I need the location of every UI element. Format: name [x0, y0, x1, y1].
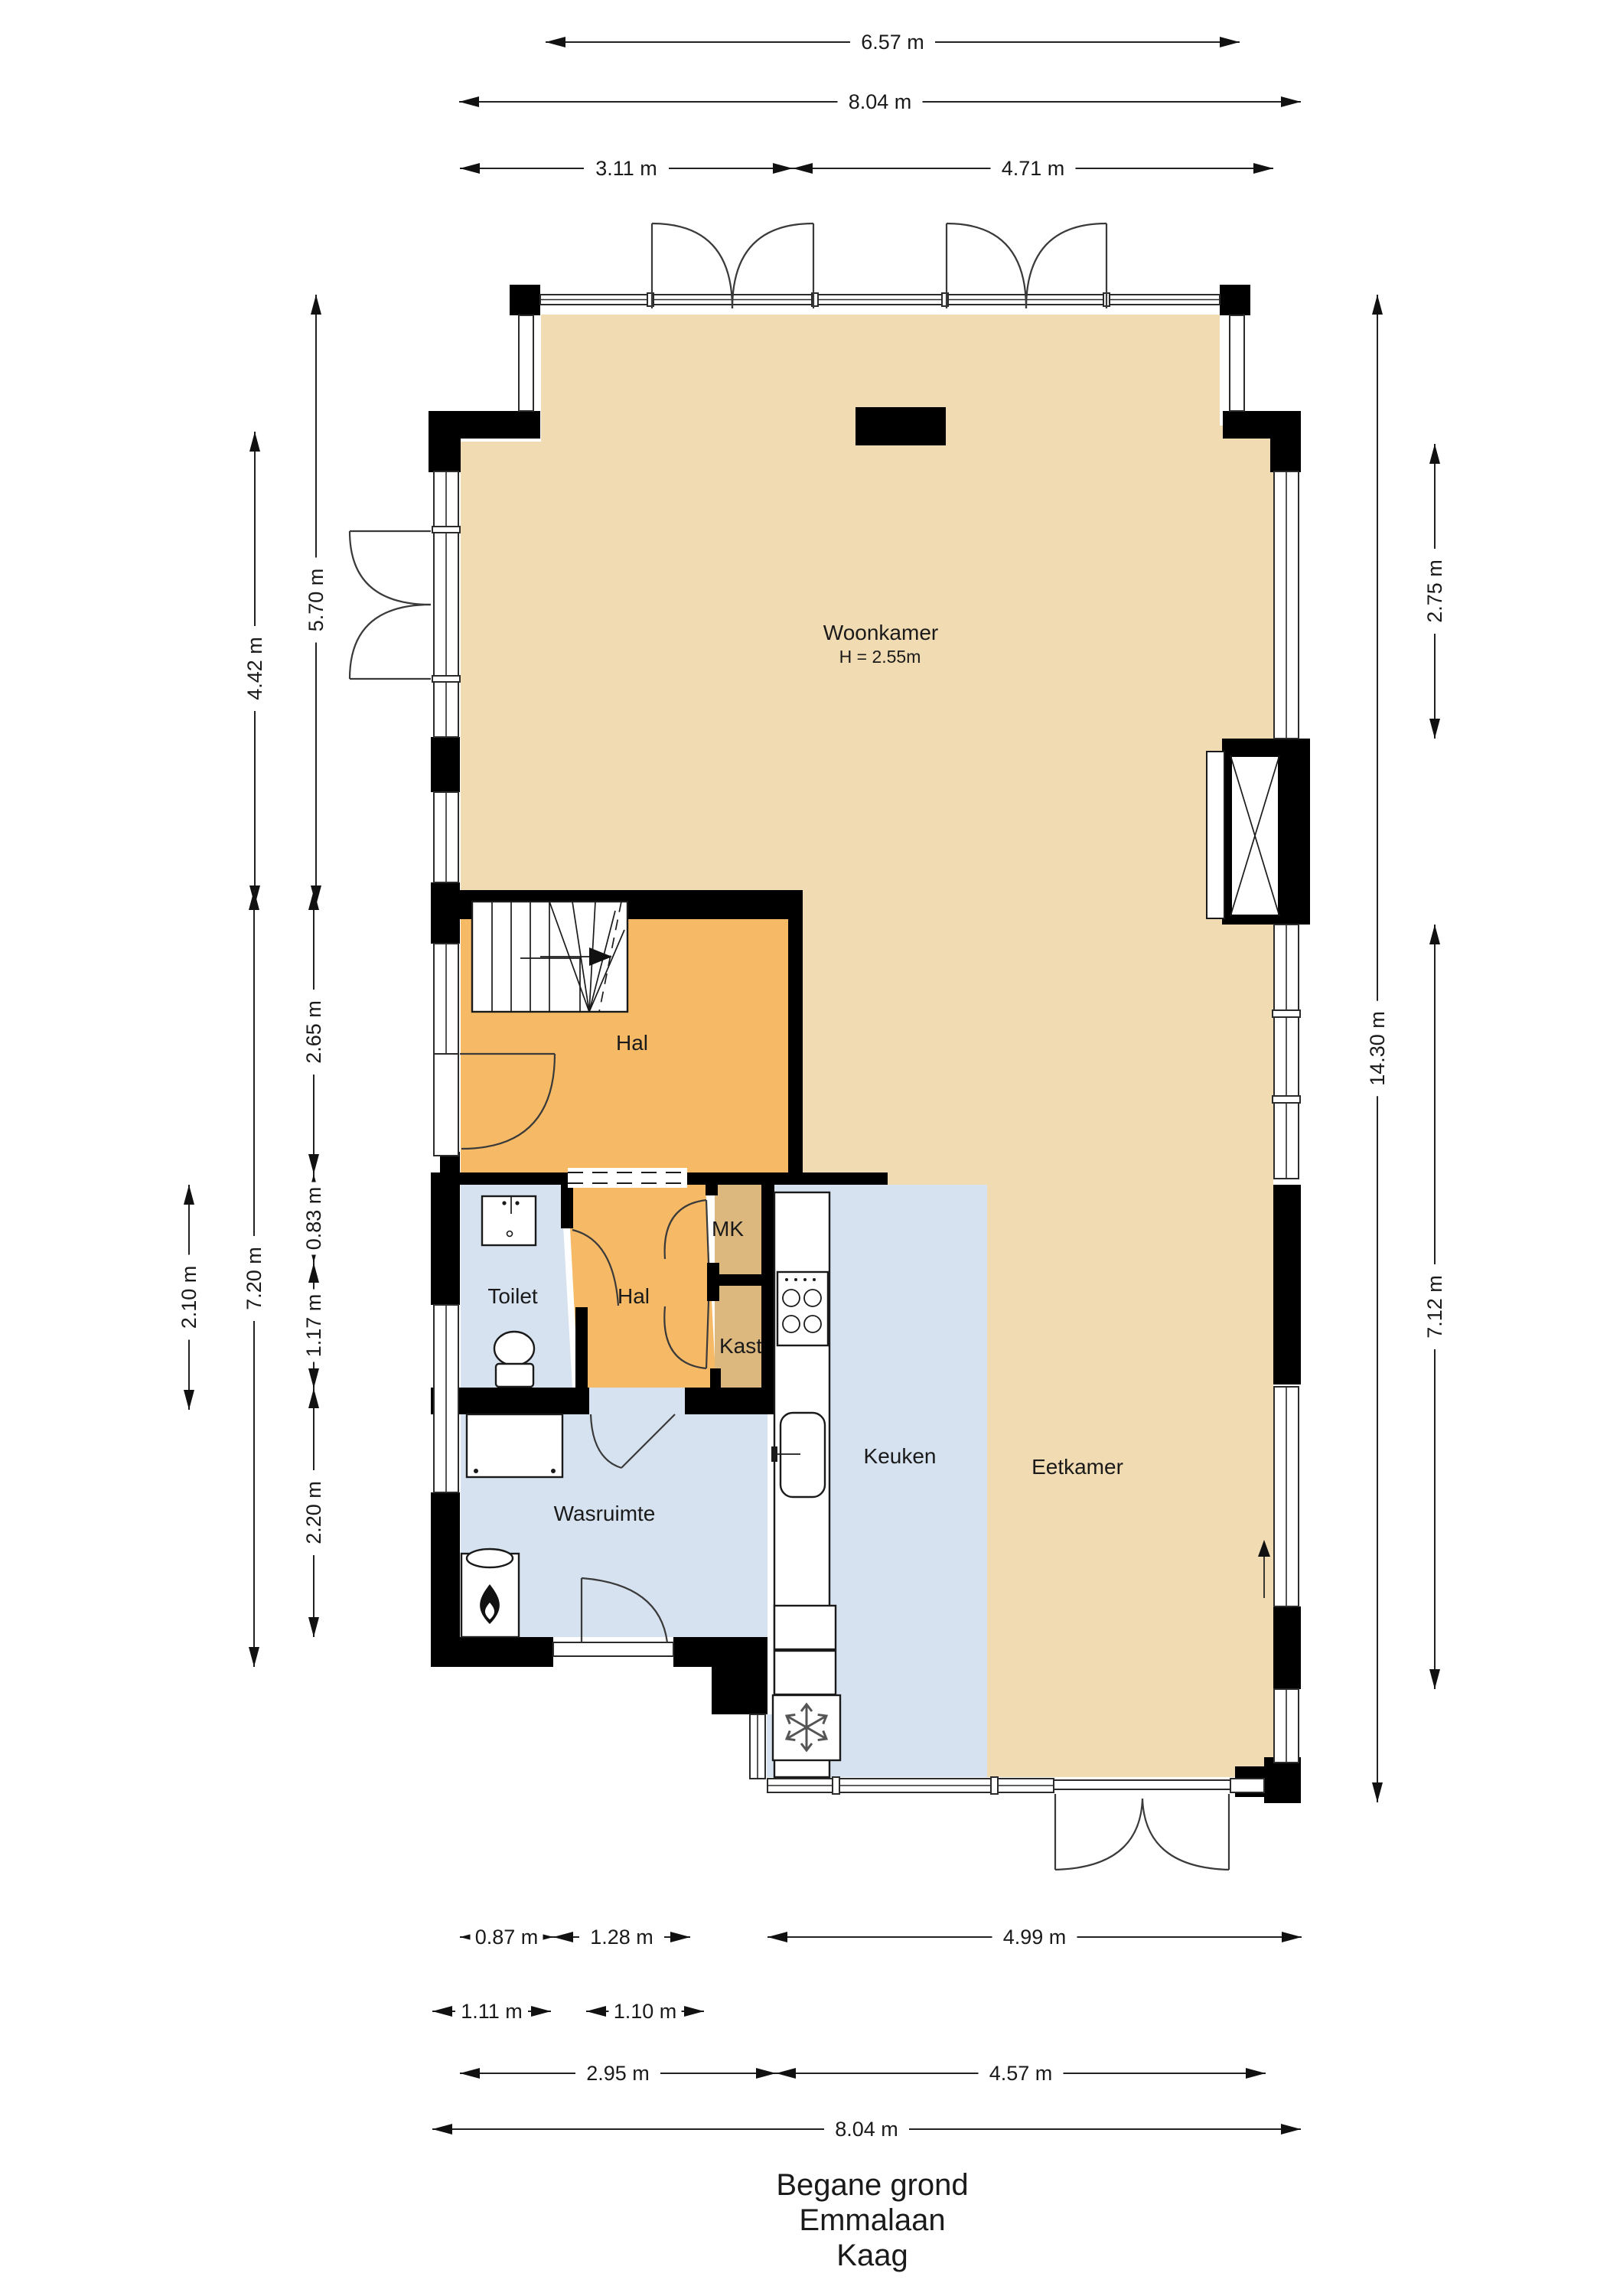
room-label-woonkamer: Woonkamer — [823, 621, 938, 644]
wall-right-post-top — [1273, 413, 1301, 471]
dimension-r1: 2.75 m — [1423, 444, 1447, 739]
title-block: Begane grond Emmalaan Kaag — [776, 2168, 968, 2272]
window-jamb — [991, 1777, 998, 1794]
dimension-l3: 2.65 m — [301, 890, 326, 1174]
dimension-b6: 2.95 m — [460, 2061, 776, 2086]
dimension-label: 4.71 m — [1002, 157, 1065, 180]
wall-vestibule-east-2 — [707, 1263, 719, 1301]
wall-left-toilet — [431, 1172, 460, 1305]
room-label-wasruimte: Wasruimte — [554, 1502, 656, 1525]
room-label-keuken: Keuken — [864, 1444, 937, 1468]
window-jamb — [833, 1777, 839, 1794]
dimension-label: 1.28 m — [590, 1926, 653, 1949]
window-jamb — [1273, 1096, 1300, 1103]
dimension-label: 3.11 m — [595, 157, 657, 180]
wall-vestibule-east-3 — [710, 1368, 721, 1388]
wall-flue-block — [855, 407, 946, 445]
dimension-l7: 7.20 m — [242, 890, 266, 1667]
title-line-1: Begane grond — [776, 2168, 968, 2202]
wall-left-low — [431, 1492, 460, 1639]
bottom-door-band — [1054, 1780, 1230, 1789]
boiler — [461, 1549, 519, 1637]
dimension-label: 2.75 m — [1423, 559, 1446, 623]
wall-post-top-left — [510, 285, 540, 315]
toilet-sink — [482, 1196, 536, 1245]
dimension-label: 0.83 m — [302, 1187, 325, 1251]
wall-toilet-east-lower — [575, 1307, 588, 1389]
dimension-label: 8.04 m — [849, 90, 912, 113]
wall-keuken-north-stub — [803, 1172, 888, 1185]
dimension-label: 4.99 m — [1003, 1926, 1067, 1949]
room-label-kast: Kast — [719, 1334, 762, 1358]
dimension-r3: 14.30 m — [1365, 295, 1390, 1802]
dimension-label: 2.95 m — [586, 2062, 650, 2085]
dimension-r2: 7.12 m — [1423, 925, 1447, 1689]
dimension-t1: 6.57 m — [546, 30, 1240, 54]
floor-doorway — [589, 1388, 685, 1414]
room-label-eetkamer: Eetkamer — [1031, 1455, 1123, 1479]
freezer — [773, 1695, 840, 1760]
wall-vestibule-south-1 — [566, 1388, 589, 1414]
dimension-b8: 8.04 m — [432, 2117, 1301, 2141]
dimension-b4: 1.11 m — [432, 1999, 551, 2024]
floorplan-drawing: Woonkamer H = 2.55m Hal Hal Toilet MK Ka… — [0, 0, 1623, 2296]
wall-mid-row-west — [460, 1172, 568, 1185]
dimension-b1: 0.87 m — [460, 1925, 553, 1949]
wall-post-top-right — [1220, 285, 1250, 315]
dimension-label: 1.11 m — [461, 2000, 523, 2023]
front-door-band — [434, 1054, 458, 1156]
dimension-label: 4.57 m — [989, 2062, 1053, 2085]
title-line-2: Emmalaan — [799, 2203, 945, 2237]
dimension-l1: 5.70 m — [304, 295, 328, 905]
stove — [777, 1272, 828, 1345]
room-label-toilet: Toilet — [487, 1284, 538, 1308]
dimension-l8: 2.10 m — [177, 1185, 201, 1410]
dimension-t2: 8.04 m — [459, 90, 1301, 114]
dimension-label: 4.42 m — [243, 637, 266, 700]
washing-machine — [467, 1414, 562, 1477]
wall-left-post-1 — [431, 737, 460, 792]
window-jamb — [432, 527, 460, 533]
toilet-bowl — [494, 1332, 534, 1387]
window-connector-right — [1230, 315, 1244, 411]
window-jamb — [1273, 1010, 1300, 1017]
dimension-label: 1.17 m — [302, 1294, 325, 1358]
dimension-t4: 4.71 m — [793, 156, 1273, 181]
kitchen-cabinet-2 — [774, 1651, 836, 1694]
dimension-label: 6.57 m — [861, 31, 924, 54]
floorplan-page: Woonkamer H = 2.55m Hal Hal Toilet MK Ka… — [0, 0, 1623, 2296]
wall-closet-east — [761, 1185, 774, 1388]
dimension-label: 14.30 m — [1366, 1011, 1389, 1086]
floor-areas — [461, 315, 1273, 1777]
wall-hal-east — [788, 890, 803, 1185]
wall-toilet-east-upper — [561, 1185, 573, 1228]
window-bottom-2 — [1230, 1779, 1264, 1792]
dimension-t3: 3.11 m — [460, 156, 793, 181]
wall-notch-corner — [712, 1637, 768, 1714]
dimension-l2: 4.42 m — [243, 432, 267, 905]
window-connector-left — [519, 315, 533, 411]
title-line-3: Kaag — [836, 2239, 908, 2272]
wall-vestibule-south-2 — [685, 1388, 774, 1414]
dimension-l6: 2.20 m — [301, 1388, 326, 1637]
room-label-mk: MK — [712, 1217, 744, 1241]
wall-upper-left-v — [429, 411, 461, 472]
wall-right-low — [1273, 1606, 1301, 1689]
kitchen-cabinet-1 — [774, 1606, 836, 1649]
dimension-b7: 4.57 m — [776, 2061, 1266, 2086]
dimension-label: 7.20 m — [243, 1247, 266, 1310]
staircase — [472, 902, 627, 1012]
wall-right-post-bottom — [1273, 1763, 1301, 1802]
dimension-label: 2.20 m — [302, 1481, 325, 1544]
dimension-label: 0.87 m — [475, 1926, 539, 1949]
dimension-label: 2.10 m — [178, 1266, 200, 1329]
room-label-hal-beneden: Hal — [618, 1284, 650, 1308]
dimension-label: 2.65 m — [302, 1000, 325, 1064]
room-sublabel-woonkamer: H = 2.55m — [839, 647, 921, 667]
wall-right-mid — [1273, 1185, 1301, 1384]
dimension-b3: 4.99 m — [768, 1925, 1302, 1949]
dimension-label: 8.04 m — [835, 2118, 898, 2141]
dimension-l4: 0.83 m — [301, 1174, 326, 1263]
double-door-left — [350, 531, 431, 679]
room-label-hal-boven: Hal — [616, 1031, 648, 1055]
wall-left-post-2 — [431, 882, 460, 944]
dimension-label: 1.10 m — [614, 2000, 677, 2023]
chimney-firebox — [1207, 752, 1279, 918]
wall-vestibule-east-1 — [706, 1185, 718, 1195]
open-passage-dashed — [568, 1168, 687, 1188]
dimension-b5: 1.10 m — [586, 1999, 704, 2024]
window-jamb — [432, 676, 460, 682]
dimension-l5: 1.17 m — [301, 1263, 326, 1388]
wall-wasruimte-south-west — [431, 1637, 553, 1667]
dimension-label: 5.70 m — [305, 569, 328, 632]
dimension-label: 7.12 m — [1423, 1275, 1446, 1339]
double-door-bottom — [1055, 1794, 1229, 1870]
dimension-b2: 1.28 m — [553, 1925, 690, 1949]
